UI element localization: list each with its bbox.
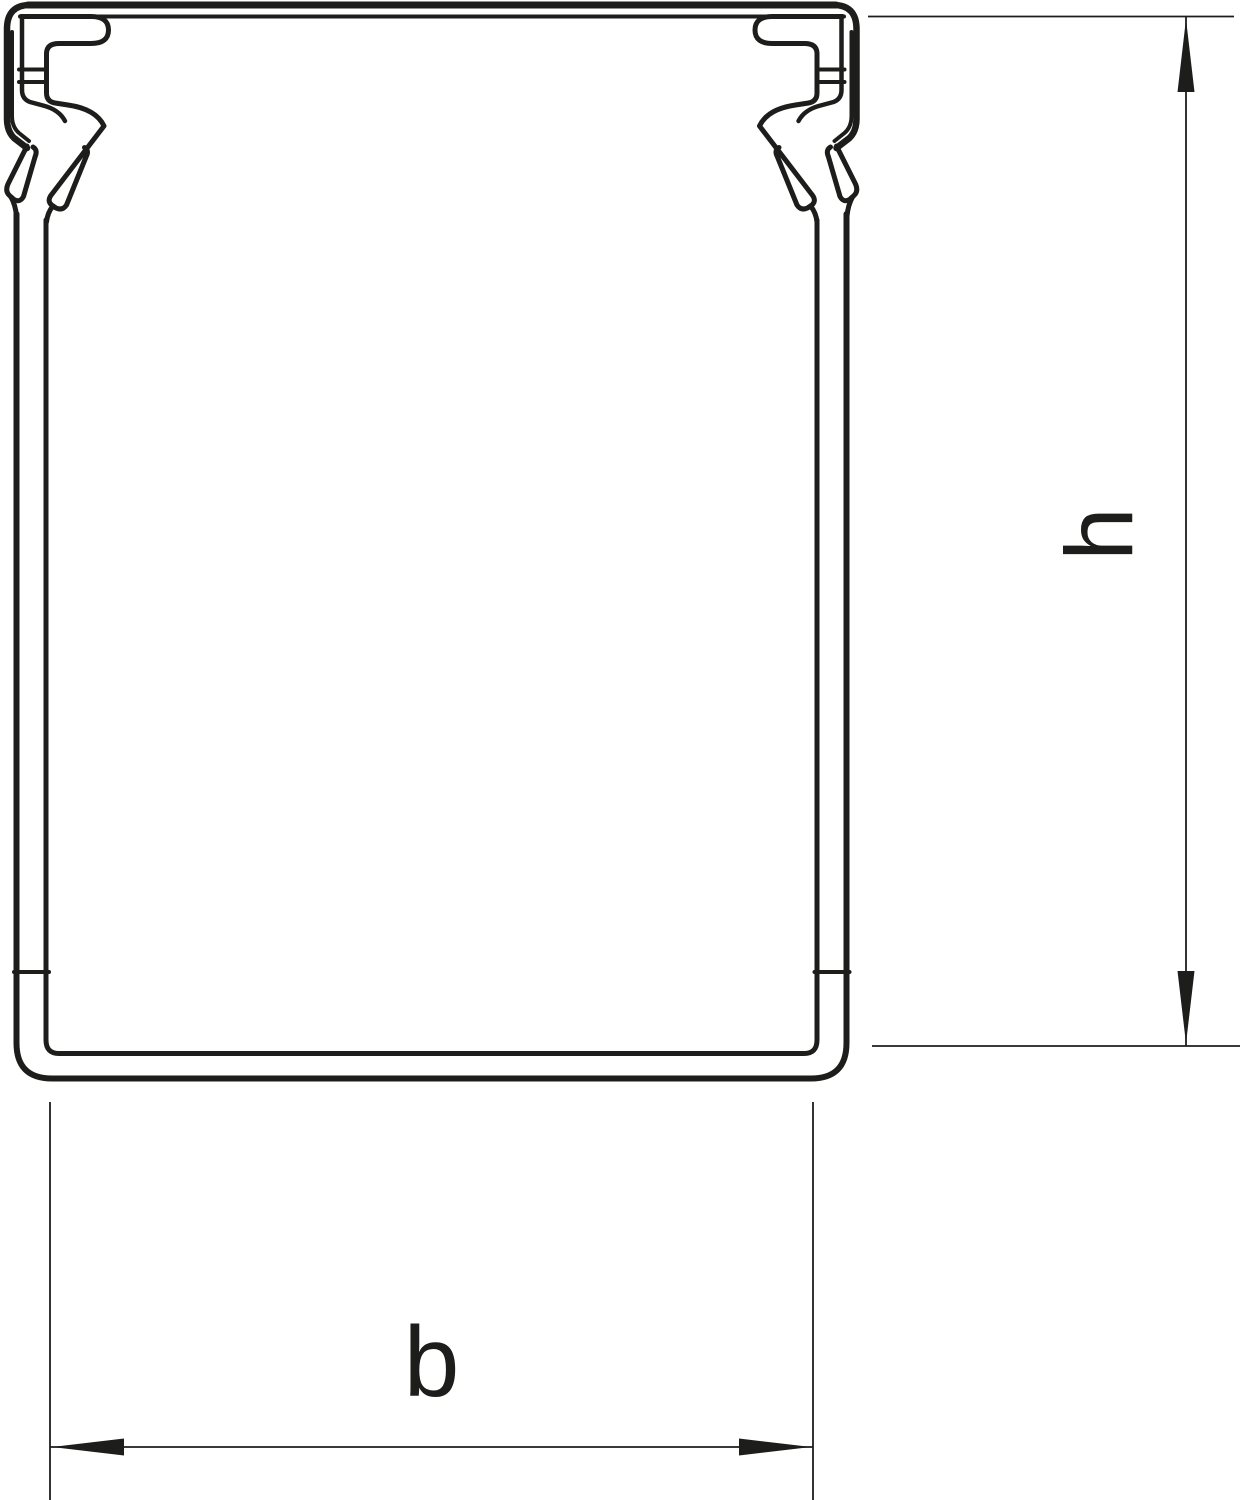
height-dimension-label: h xyxy=(1047,507,1154,560)
technical-drawing: h b xyxy=(0,0,1241,1500)
width-dimension-label: b xyxy=(404,1306,460,1418)
drawing-canvas: h b xyxy=(0,0,1241,1500)
drawing-background xyxy=(0,0,1241,1500)
